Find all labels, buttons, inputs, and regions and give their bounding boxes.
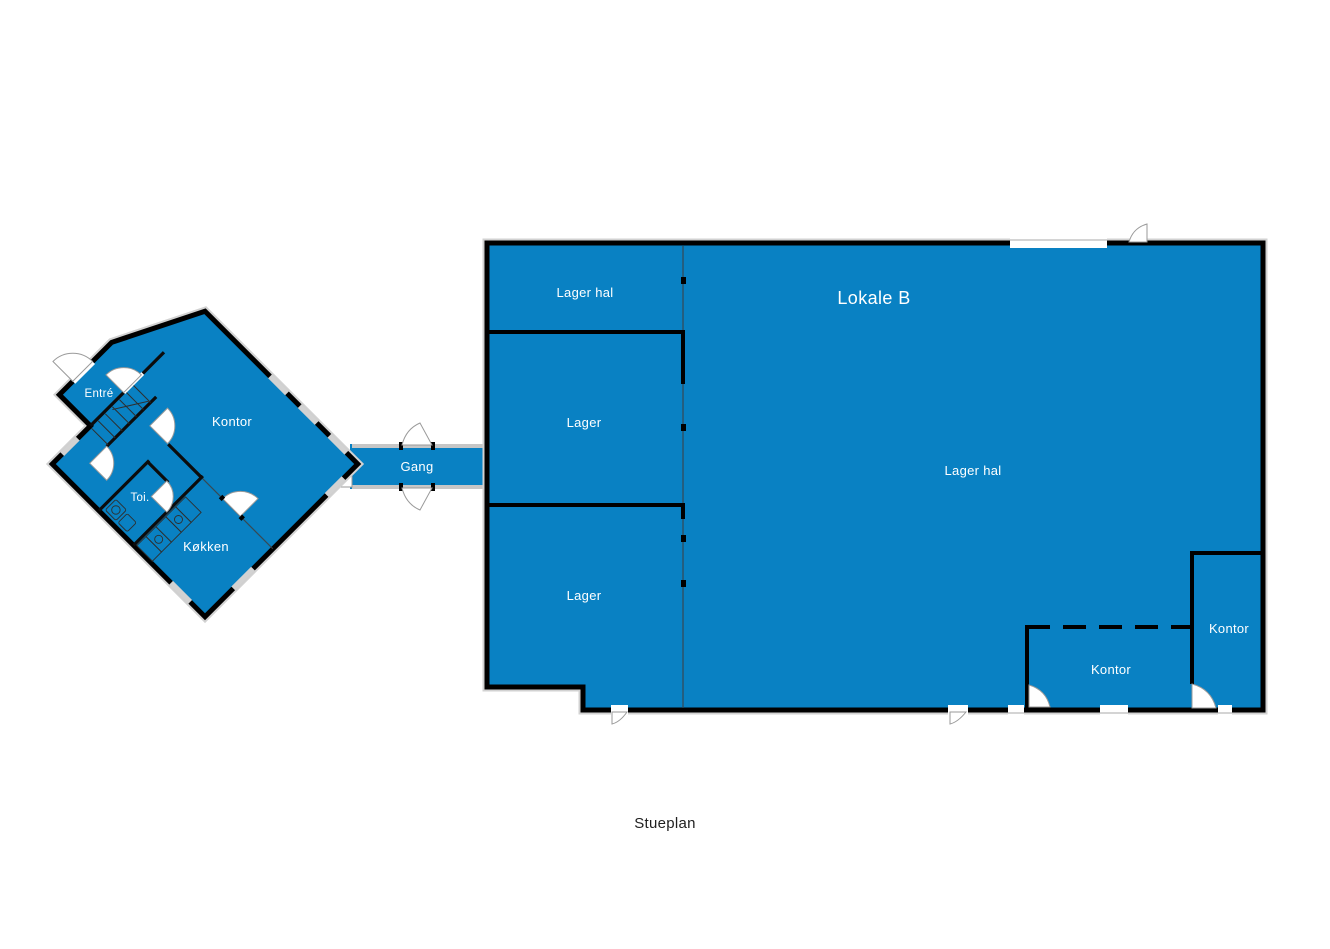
floorplan-page: Lager hal Lokale B Lager Lager hal Lager… [0,0,1330,949]
room-label-lager-hal-top: Lager hal [557,285,614,300]
left-building [1,260,357,616]
partition-tick [681,535,686,542]
window-opening [1218,705,1232,716]
door-swing-icon [402,488,432,510]
room-label-entre: Entré [85,388,114,400]
room-label-gang: Gang [400,459,433,474]
building-title-lokale-b: Lokale B [837,288,910,308]
room-label-toi: Toi. [130,492,149,504]
door-swing-icon [950,712,966,724]
room-label-lager-bottom: Lager [567,588,602,603]
partition-tick [681,580,686,587]
partition-tick [681,277,686,284]
room-label-lager-mid: Lager [567,415,602,430]
window-opening [1010,237,1107,248]
room-label-kontor-left-building: Kontor [212,414,252,429]
door-swing-icon [612,712,627,724]
door-frame-tick [431,442,435,450]
door-frame-tick [431,483,435,491]
door-swing-icon [402,423,432,445]
door-swing-icon [1129,224,1147,242]
exterior-wall [487,243,1263,710]
partition-tick [681,424,686,431]
plan-caption: Stueplan [634,815,696,832]
floorplan-canvas: Lager hal Lokale B Lager Lager hal Lager… [0,0,1330,949]
window-opening [1100,705,1128,716]
room-label-lager-hal-main: Lager hal [945,463,1002,478]
window-opening [1008,705,1024,716]
room-label-kontor-right: Kontor [1209,621,1249,636]
room-label-kokken: Køkken [183,539,229,554]
room-label-kontor-mid: Kontor [1091,662,1131,677]
